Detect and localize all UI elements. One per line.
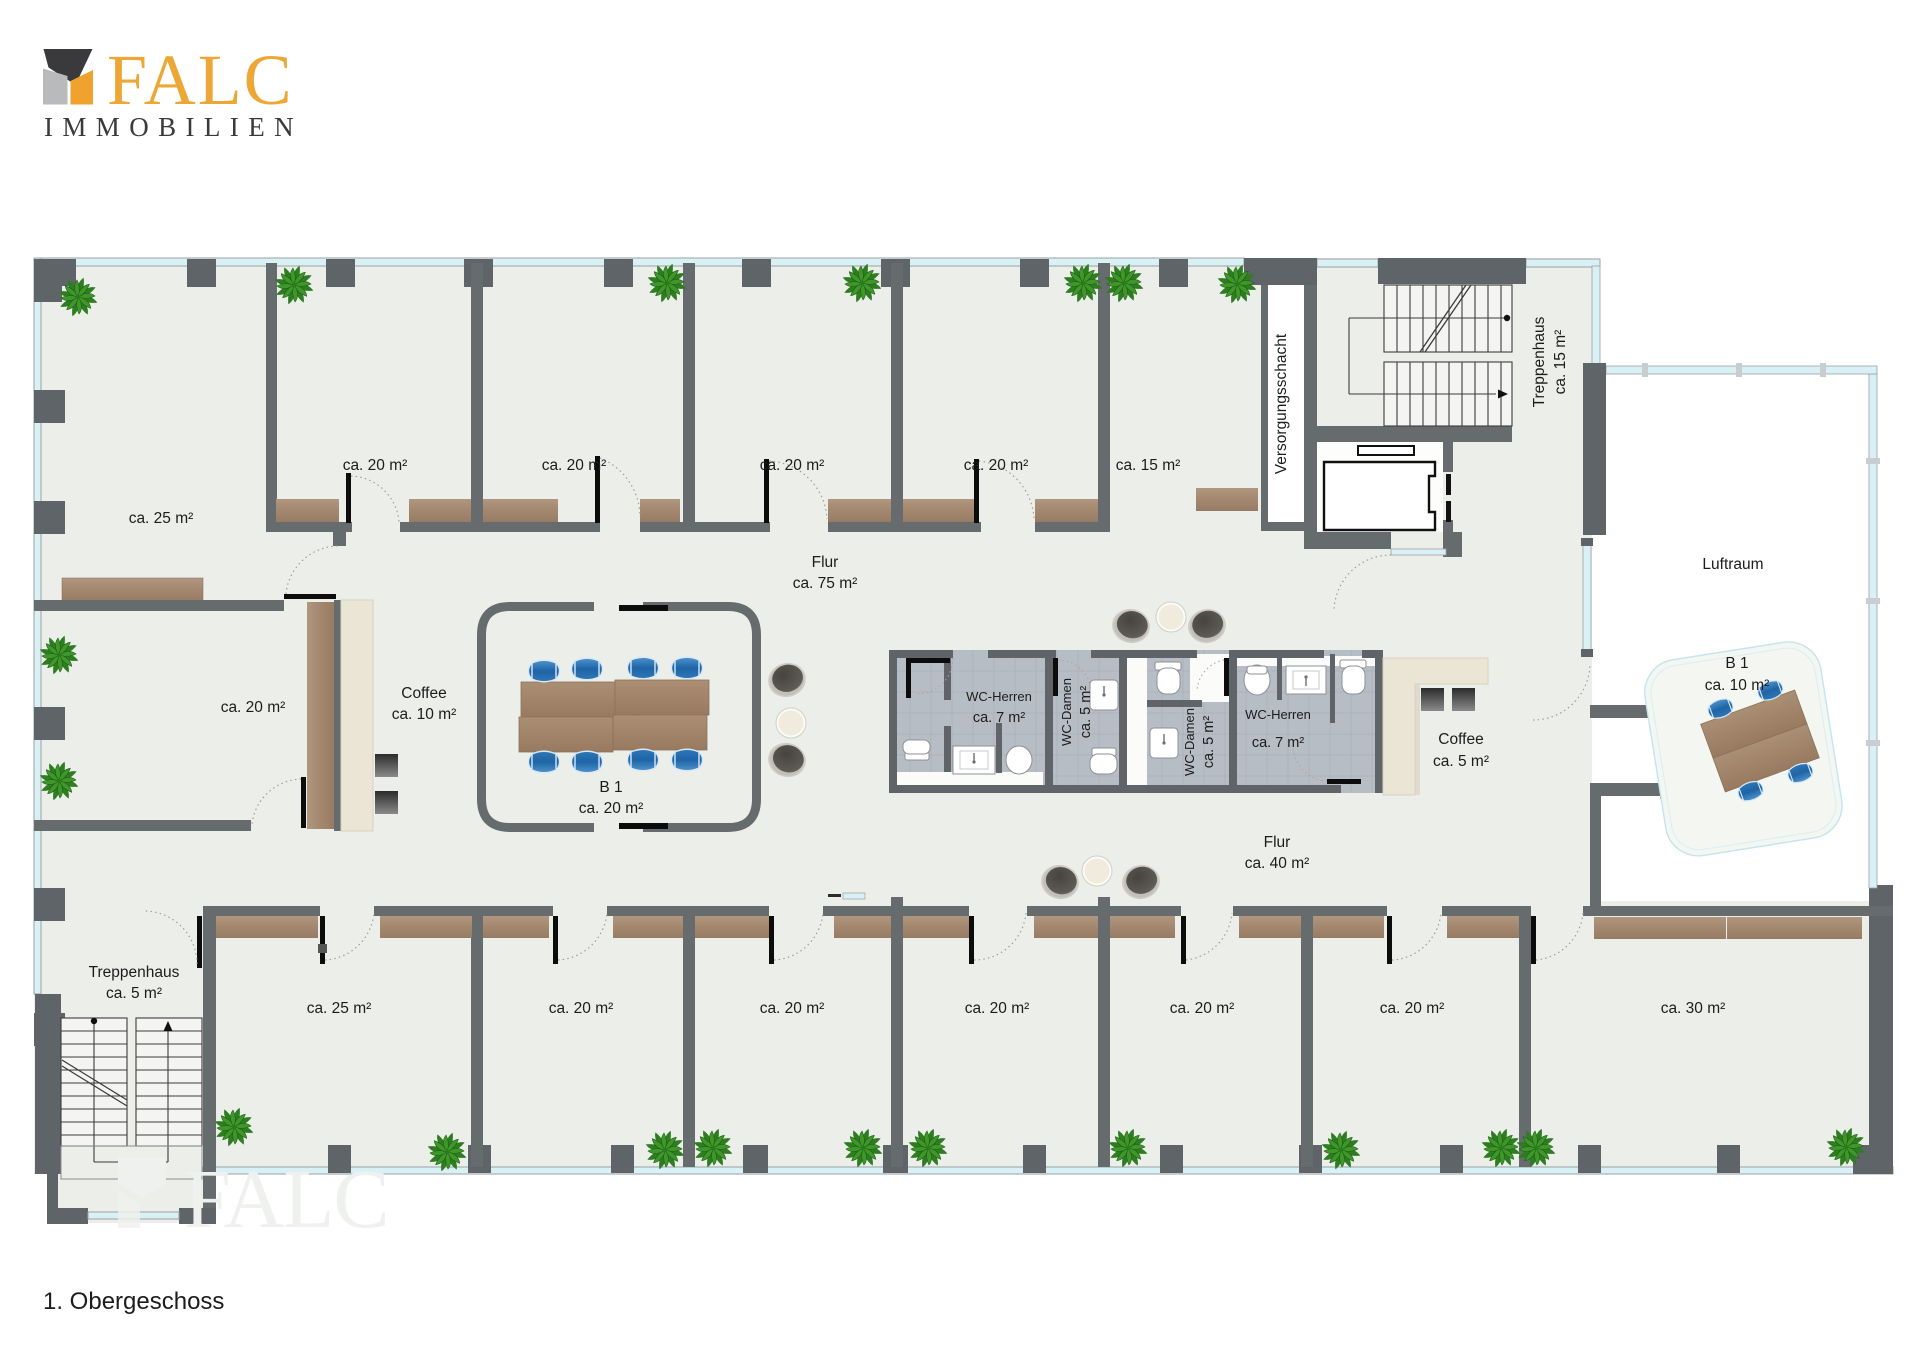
svg-text:ca. 75 m²: ca. 75 m² xyxy=(793,575,858,592)
svg-text:ca. 10 m²: ca. 10 m² xyxy=(1705,677,1770,694)
svg-text:B 1: B 1 xyxy=(1725,655,1748,672)
svg-text:WC-Damen: WC-Damen xyxy=(1059,678,1074,746)
svg-text:ca. 5 m²: ca. 5 m² xyxy=(106,985,162,1002)
svg-text:ca. 7 m²: ca. 7 m² xyxy=(1252,735,1305,751)
svg-text:ca. 20 m²: ca. 20 m² xyxy=(1380,1000,1445,1017)
svg-text:ca. 20 m²: ca. 20 m² xyxy=(1170,1000,1235,1017)
svg-text:ca. 20 m²: ca. 20 m² xyxy=(760,1000,825,1017)
svg-text:ca. 20 m²: ca. 20 m² xyxy=(579,800,644,817)
svg-text:ca. 5 m²: ca. 5 m² xyxy=(1201,716,1217,769)
svg-text:ca. 15 m²: ca. 15 m² xyxy=(1552,330,1569,395)
svg-text:ca. 25 m²: ca. 25 m² xyxy=(129,510,194,527)
svg-text:ca. 20 m²: ca. 20 m² xyxy=(549,1000,614,1017)
svg-text:ca. 20 m²: ca. 20 m² xyxy=(542,457,607,474)
svg-text:Flur: Flur xyxy=(812,554,839,571)
svg-text:B 1: B 1 xyxy=(599,779,622,796)
svg-text:Luftraum: Luftraum xyxy=(1702,556,1763,573)
svg-text:ca. 20 m²: ca. 20 m² xyxy=(760,457,825,474)
svg-text:ca. 40 m²: ca. 40 m² xyxy=(1245,855,1310,872)
svg-text:ca. 20 m²: ca. 20 m² xyxy=(221,699,286,716)
svg-text:IMMOBILIEN: IMMOBILIEN xyxy=(44,112,303,142)
svg-text:ca. 15 m²: ca. 15 m² xyxy=(1116,457,1181,474)
svg-text:Treppenhaus: Treppenhaus xyxy=(1531,316,1548,407)
svg-text:ca. 5 m²: ca. 5 m² xyxy=(1433,753,1489,770)
svg-text:ca. 30 m²: ca. 30 m² xyxy=(1661,1000,1726,1017)
svg-text:ca. 20 m²: ca. 20 m² xyxy=(343,457,408,474)
svg-text:ca. 5 m²: ca. 5 m² xyxy=(1078,686,1094,739)
svg-text:WC-Herren: WC-Herren xyxy=(1245,707,1311,722)
svg-text:ca. 10 m²: ca. 10 m² xyxy=(392,706,457,723)
svg-text:ca. 20 m²: ca. 20 m² xyxy=(964,457,1029,474)
svg-text:ca. 25 m²: ca. 25 m² xyxy=(307,1000,372,1017)
svg-text:1. Obergeschoss: 1. Obergeschoss xyxy=(43,1288,224,1315)
svg-text:ca. 7 m²: ca. 7 m² xyxy=(973,710,1026,726)
svg-text:Treppenhaus: Treppenhaus xyxy=(89,964,180,981)
svg-text:WC-Herren: WC-Herren xyxy=(966,689,1032,704)
svg-text:FALC: FALC xyxy=(107,40,294,120)
svg-text:WC-Damen: WC-Damen xyxy=(1182,708,1197,776)
svg-text:Coffee: Coffee xyxy=(401,685,446,702)
svg-text:Versorgungsschacht: Versorgungsschacht xyxy=(1273,333,1290,474)
svg-text:ca. 20 m²: ca. 20 m² xyxy=(965,1000,1030,1017)
svg-text:FALC: FALC xyxy=(184,1153,388,1246)
svg-text:Coffee: Coffee xyxy=(1438,731,1483,748)
svg-text:Flur: Flur xyxy=(1264,834,1291,851)
